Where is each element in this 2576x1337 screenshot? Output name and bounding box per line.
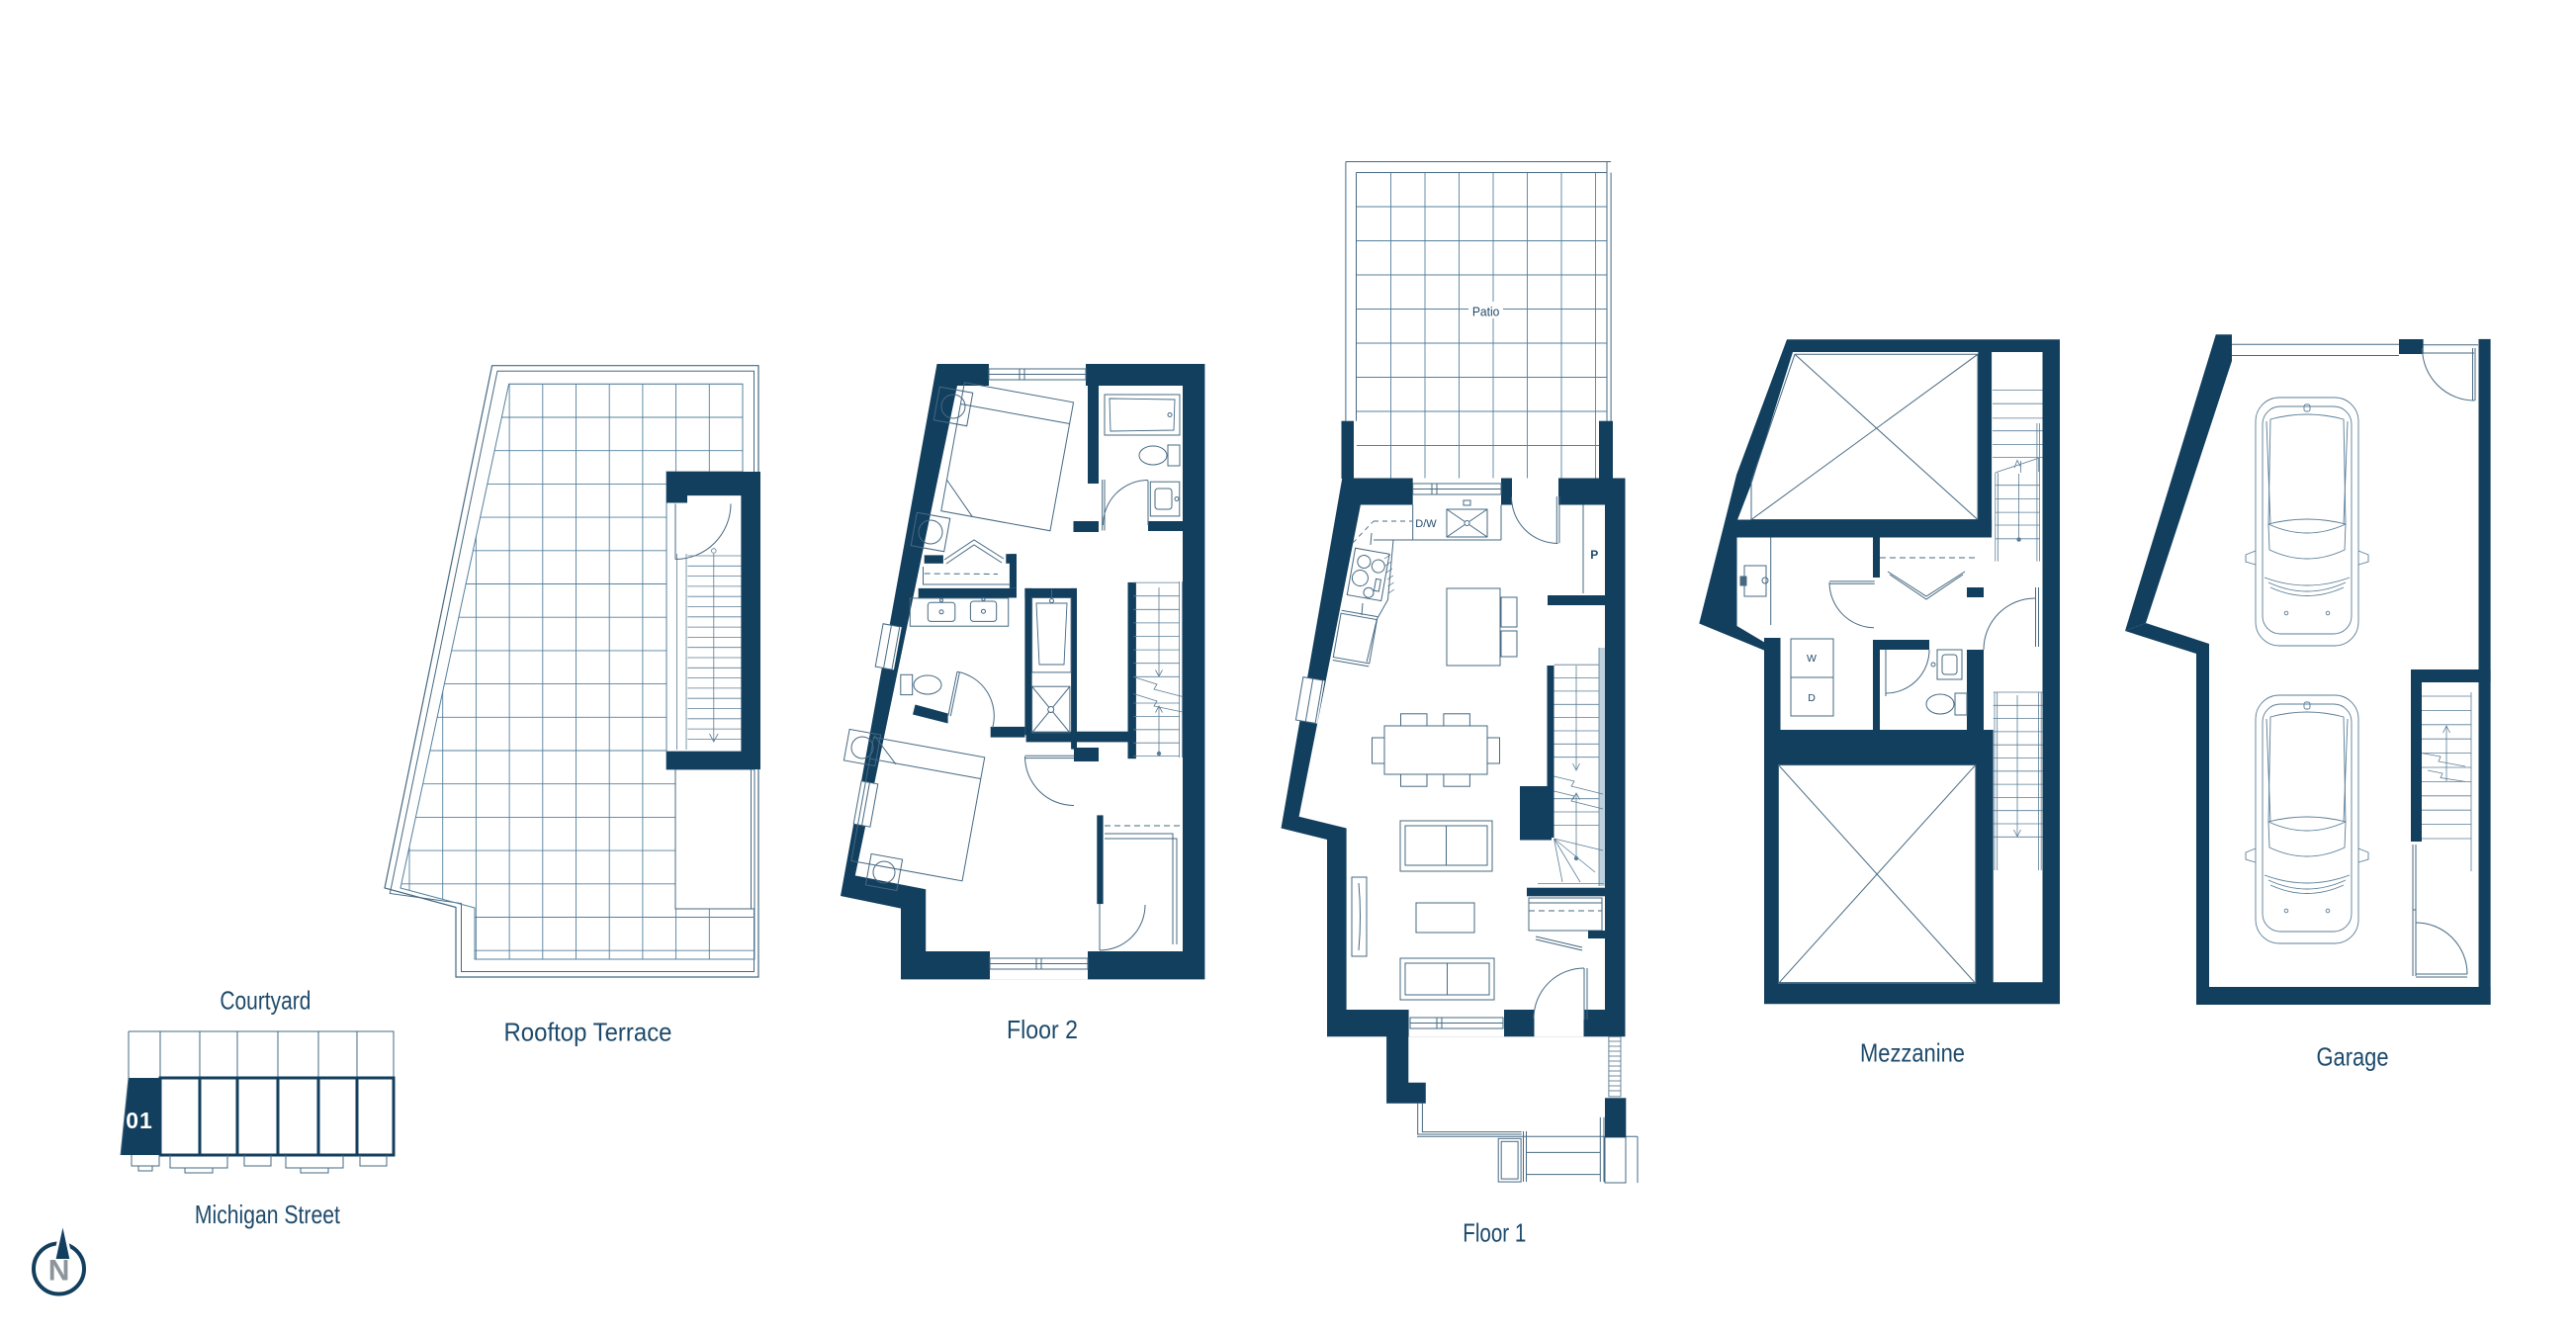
svg-text:Michigan Street: Michigan Street [195, 1200, 341, 1229]
svg-text:Rooftop Terrace: Rooftop Terrace [504, 1017, 672, 1046]
svg-text:01: 01 [126, 1108, 153, 1133]
svg-text:W: W [1807, 653, 1817, 665]
svg-text:Floor 1: Floor 1 [1463, 1217, 1526, 1247]
svg-text:Floor 2: Floor 2 [1007, 1015, 1078, 1044]
svg-text:P: P [1590, 548, 1598, 562]
svg-text:Patio: Patio [1472, 305, 1500, 319]
svg-text:D: D [1808, 692, 1816, 704]
svg-text:Garage: Garage [2317, 1042, 2389, 1072]
svg-text:N: N [48, 1255, 70, 1288]
svg-text:Courtyard: Courtyard [220, 985, 311, 1015]
svg-text:Mezzanine: Mezzanine [1860, 1037, 1965, 1067]
svg-text:D/W: D/W [1415, 518, 1437, 530]
